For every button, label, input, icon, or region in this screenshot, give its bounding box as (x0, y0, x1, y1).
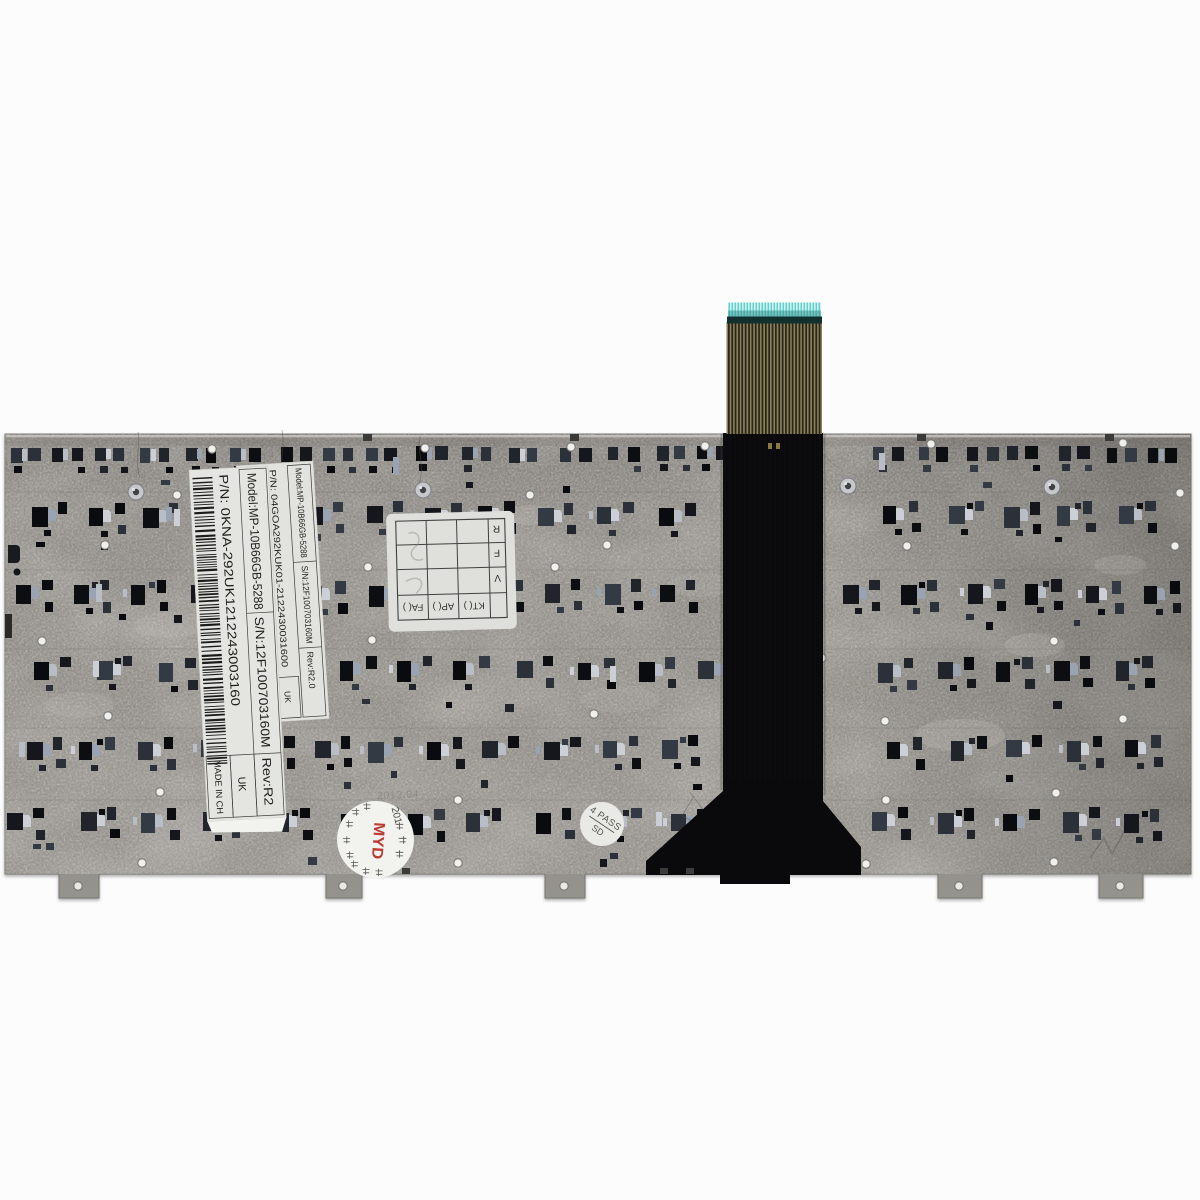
svg-text:V: V (494, 572, 501, 583)
svg-text:F: F (494, 547, 500, 558)
svg-text:Rev:R2: Rev:R2 (259, 757, 275, 806)
svg-text:UK: UK (235, 777, 248, 792)
svg-text:R: R (493, 523, 501, 534)
svg-text:FA( ): FA( ) (403, 601, 424, 613)
svg-text:KT( ): KT( ) (463, 600, 484, 612)
svg-text:MYD: MYD (368, 822, 388, 860)
svg-text:2012.04: 2012.04 (377, 789, 420, 802)
svg-text:UK: UK (282, 691, 293, 704)
svg-text:AP( ): AP( ) (432, 600, 454, 612)
